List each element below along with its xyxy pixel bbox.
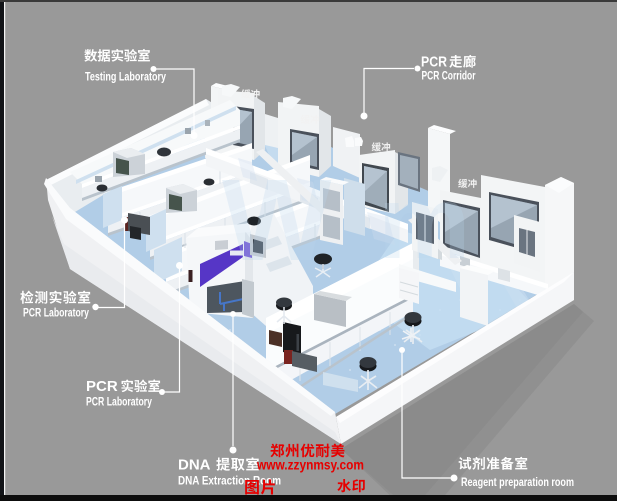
svg-text:PCR Laboratory: PCR Laboratory <box>23 308 89 320</box>
svg-text:www.zzynmsy.com: www.zzynmsy.com <box>256 457 364 473</box>
svg-text:W: W <box>222 155 332 285</box>
svg-text:PCR: PCR <box>421 55 447 71</box>
svg-text:DNA Extraction Room: DNA Extraction Room <box>178 476 281 488</box>
svg-text:PCR Corridor: PCR Corridor <box>422 71 476 83</box>
svg-text:DNA: DNA <box>178 457 211 474</box>
svg-text:PCR Laboratory: PCR Laboratory <box>86 397 152 409</box>
svg-text:PCR: PCR <box>86 378 118 395</box>
svg-text:m: m <box>378 165 470 281</box>
svg-text:Reagent preparation room: Reagent preparation room <box>461 477 574 489</box>
